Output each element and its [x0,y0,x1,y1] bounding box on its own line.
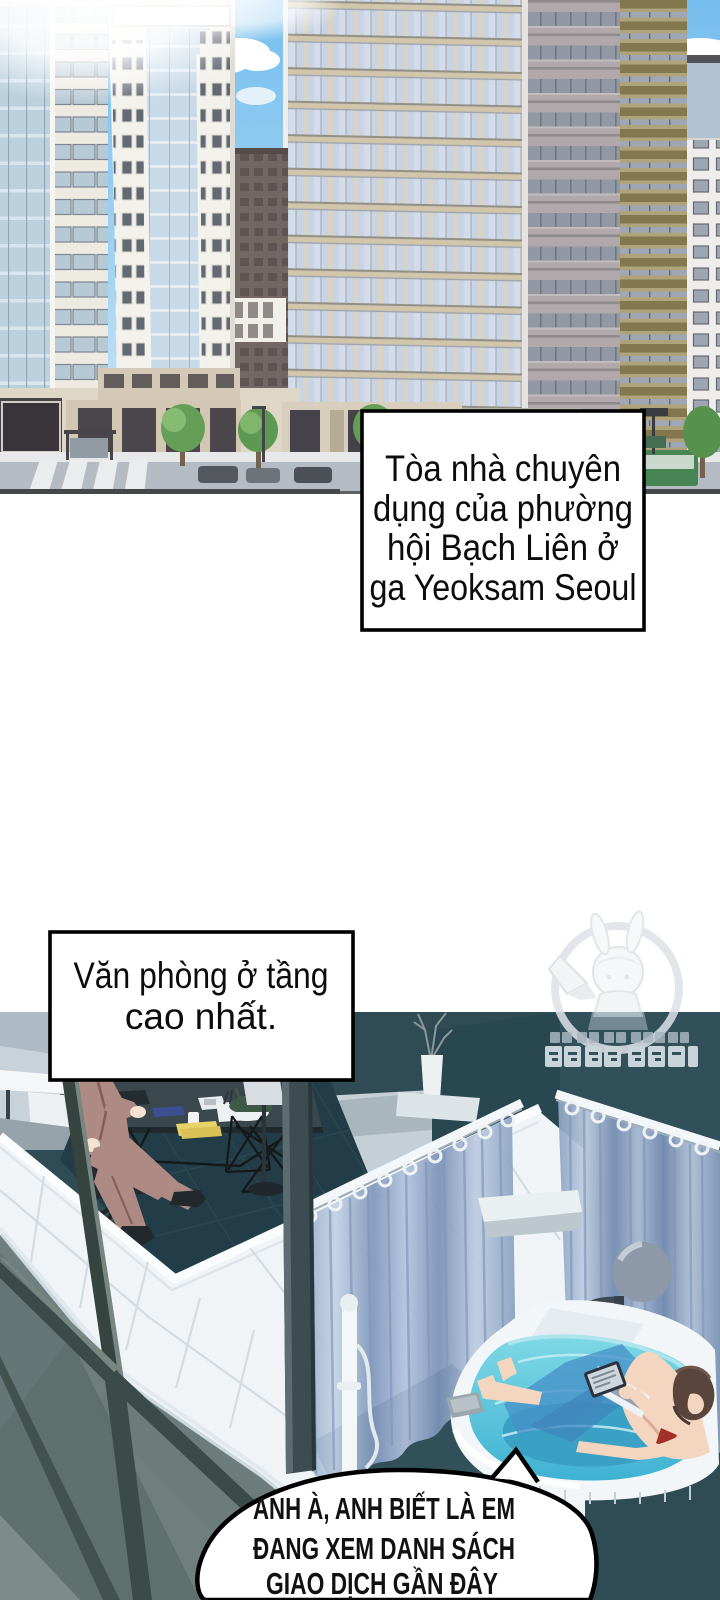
svg-text:hội Bạch Liên ở: hội Bạch Liên ở [387,527,619,568]
svg-text:Tòa nhà chuyên: Tòa nhà chuyên [385,448,621,489]
svg-text:ANH À, ANH BIẾT LÀ EM: ANH À, ANH BIẾT LÀ EM [253,1491,515,1526]
svg-text:dụng của phường: dụng của phường [373,488,633,529]
svg-text:Văn phòng ở tầng: Văn phòng ở tầng [74,955,329,996]
svg-text:ĐANG XEM DANH SÁCH: ĐANG XEM DANH SÁCH [253,1531,515,1566]
svg-text:ga Yeoksam Seoul: ga Yeoksam Seoul [370,567,637,608]
svg-text:GIAO DỊCH GẦN ĐÂY: GIAO DỊCH GẦN ĐÂY [266,1565,498,1600]
svg-text:cao nhất.: cao nhất. [125,996,277,1037]
